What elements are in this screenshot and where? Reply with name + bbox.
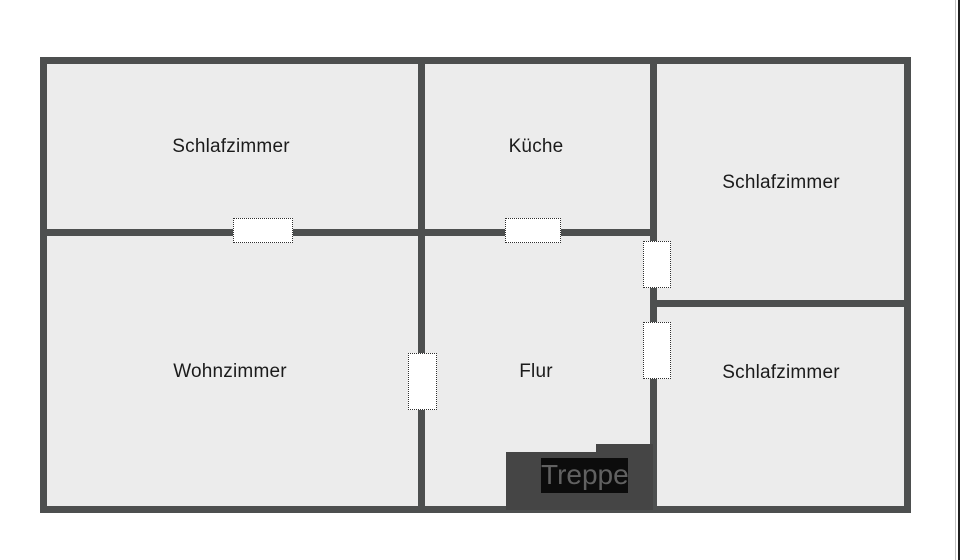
- door-opening-schlafzimmer-top-left: [233, 218, 293, 243]
- wall-horizontal-right-bedrooms: [650, 300, 911, 307]
- room-label-kueche: Küche: [509, 136, 564, 158]
- door-opening-schlafzimmer-right: [643, 241, 671, 288]
- room-label-schlafzimmer-right: Schlafzimmer: [722, 172, 839, 194]
- wall-horizontal-middle: [40, 229, 657, 236]
- room-label-schlafzimmer-top-left: Schlafzimmer: [172, 136, 289, 158]
- door-opening-kueche: [505, 218, 561, 243]
- wall-vertical-livingroom-hall: [418, 57, 425, 513]
- stairs-label: Treppe: [541, 458, 628, 493]
- image-edge-line-light: [955, 0, 956, 560]
- door-opening-schlafzimmer-bottom-right: [643, 322, 671, 379]
- door-opening-wohnzimmer: [408, 353, 437, 410]
- floor-plan-outline: [40, 57, 911, 513]
- room-label-schlafzimmer-bottom-right: Schlafzimmer: [722, 362, 839, 384]
- room-label-wohnzimmer: Wohnzimmer: [173, 361, 287, 383]
- floor-plan-screenshot: Treppe Schlafzimmer Küche Schlafzimmer W…: [0, 0, 960, 560]
- room-label-flur: Flur: [519, 361, 553, 383]
